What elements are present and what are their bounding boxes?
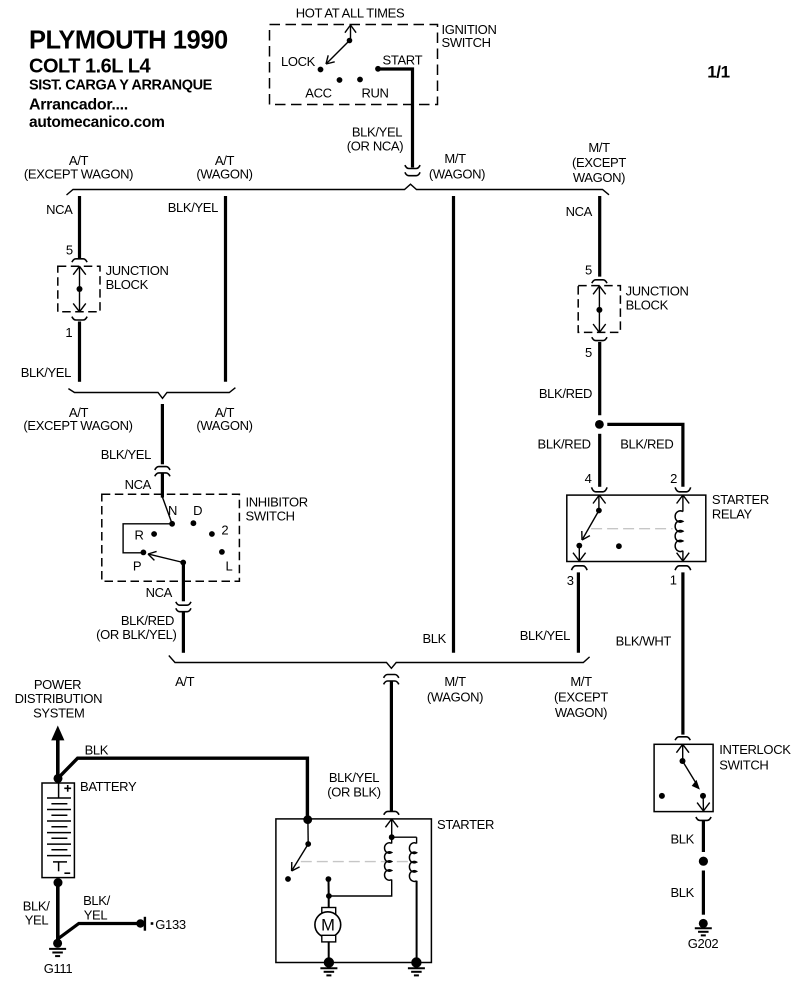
- svg-text:M/T: M/T: [570, 674, 592, 689]
- svg-text:M/T: M/T: [444, 674, 466, 689]
- svg-text:YEL: YEL: [25, 913, 49, 928]
- svg-text:JUNCTION: JUNCTION: [626, 283, 689, 298]
- svg-text:3: 3: [567, 573, 574, 588]
- svg-text:HOT AT ALL TIMES: HOT AT ALL TIMES: [296, 6, 405, 21]
- svg-text:A/T: A/T: [175, 674, 195, 689]
- svg-text:WAGON): WAGON): [555, 705, 607, 720]
- svg-text:(WAGON): (WAGON): [429, 167, 485, 182]
- svg-text:START: START: [383, 53, 423, 68]
- svg-text:(WAGON): (WAGON): [196, 167, 252, 182]
- svg-text:(EXCEPT: (EXCEPT: [572, 155, 626, 170]
- svg-text:M/T: M/T: [444, 151, 466, 166]
- svg-text:BLK/: BLK/: [23, 899, 51, 914]
- svg-text:SWITCH: SWITCH: [246, 509, 295, 524]
- svg-text:G111: G111: [44, 961, 73, 976]
- svg-text:NCA: NCA: [46, 202, 73, 217]
- svg-text:BLK: BLK: [670, 885, 694, 900]
- svg-text:WAGON): WAGON): [573, 170, 625, 185]
- svg-text:SYSTEM: SYSTEM: [33, 706, 84, 721]
- svg-text:BLK/YEL: BLK/YEL: [329, 770, 379, 785]
- svg-text:JUNCTION: JUNCTION: [106, 263, 169, 278]
- svg-text:BLOCK: BLOCK: [626, 297, 669, 312]
- svg-text:COLT 1.6L L4: COLT 1.6L L4: [29, 56, 151, 78]
- svg-text:NCA: NCA: [146, 585, 173, 600]
- svg-text:LOCK: LOCK: [281, 54, 316, 69]
- svg-text:R: R: [134, 527, 143, 542]
- svg-text:BLK/RED: BLK/RED: [538, 437, 591, 452]
- svg-text:POWER: POWER: [34, 677, 81, 692]
- svg-text:BLK/: BLK/: [83, 893, 111, 908]
- svg-text:M: M: [321, 917, 334, 935]
- svg-text:BLOCK: BLOCK: [106, 277, 149, 292]
- svg-text:SIST. CARGA Y ARRANQUE: SIST. CARGA Y ARRANQUE: [29, 78, 213, 94]
- svg-text:automecanico.com: automecanico.com: [29, 114, 165, 131]
- svg-text:5: 5: [585, 345, 592, 360]
- svg-text:PLYMOUTH 1990: PLYMOUTH 1990: [29, 27, 228, 55]
- svg-text:SWITCH: SWITCH: [719, 758, 768, 773]
- svg-text:M/T: M/T: [588, 140, 610, 155]
- svg-text:BLK/YEL: BLK/YEL: [21, 365, 71, 380]
- svg-text:NCA: NCA: [125, 477, 152, 492]
- svg-text:RUN: RUN: [361, 86, 388, 101]
- svg-text:(EXCEPT: (EXCEPT: [554, 690, 608, 705]
- svg-text:4: 4: [585, 471, 592, 486]
- svg-text:BLK/YEL: BLK/YEL: [168, 200, 218, 215]
- svg-text:D: D: [193, 503, 202, 518]
- svg-text:L: L: [225, 558, 232, 573]
- svg-text:1/1: 1/1: [707, 63, 730, 82]
- svg-text:(OR NCA): (OR NCA): [347, 139, 403, 154]
- svg-text:(OR BLK): (OR BLK): [327, 785, 381, 800]
- svg-text:INHIBITOR: INHIBITOR: [246, 495, 308, 510]
- svg-text:2: 2: [221, 522, 228, 537]
- svg-text:INTERLOCK: INTERLOCK: [719, 742, 791, 757]
- svg-text:BATTERY: BATTERY: [80, 779, 137, 794]
- svg-text:2: 2: [670, 471, 677, 486]
- svg-text:BLK/YEL: BLK/YEL: [352, 125, 402, 140]
- svg-text:(OR BLK/YEL): (OR BLK/YEL): [96, 627, 176, 642]
- svg-text:YEL: YEL: [84, 908, 108, 923]
- svg-text:5: 5: [66, 243, 73, 258]
- svg-text:5: 5: [585, 263, 592, 278]
- svg-text:STARTER: STARTER: [712, 492, 769, 507]
- svg-text:BLK/WHT: BLK/WHT: [616, 634, 672, 649]
- svg-text:NCA: NCA: [566, 204, 593, 219]
- svg-text:BLK/YEL: BLK/YEL: [520, 628, 570, 643]
- svg-text:P: P: [133, 558, 141, 573]
- svg-text:1: 1: [65, 325, 72, 340]
- svg-text:RELAY: RELAY: [712, 506, 753, 521]
- svg-text:G133: G133: [155, 917, 186, 932]
- svg-text:(WAGON): (WAGON): [427, 690, 483, 705]
- svg-text:STARTER: STARTER: [437, 817, 494, 832]
- svg-text:BLK: BLK: [422, 631, 446, 646]
- svg-text:BLK: BLK: [670, 832, 694, 847]
- svg-text:(WAGON): (WAGON): [196, 418, 252, 433]
- svg-text:BLK/RED: BLK/RED: [121, 613, 174, 628]
- svg-text:(EXCEPT WAGON): (EXCEPT WAGON): [24, 167, 133, 182]
- svg-text:1: 1: [670, 573, 677, 588]
- svg-text:BLK/YEL: BLK/YEL: [101, 447, 151, 462]
- svg-text:Arrancador....: Arrancador....: [29, 97, 128, 114]
- svg-text:DISTRIBUTION: DISTRIBUTION: [15, 691, 103, 706]
- svg-text:(EXCEPT WAGON): (EXCEPT WAGON): [23, 418, 132, 433]
- svg-text:N: N: [168, 503, 177, 518]
- svg-text:G202: G202: [688, 936, 719, 951]
- svg-text:SWITCH: SWITCH: [442, 35, 491, 50]
- svg-text:ACC: ACC: [305, 86, 331, 101]
- svg-text:BLK/RED: BLK/RED: [539, 386, 592, 401]
- svg-text:BLK/RED: BLK/RED: [620, 437, 673, 452]
- svg-text:BLK: BLK: [85, 743, 109, 758]
